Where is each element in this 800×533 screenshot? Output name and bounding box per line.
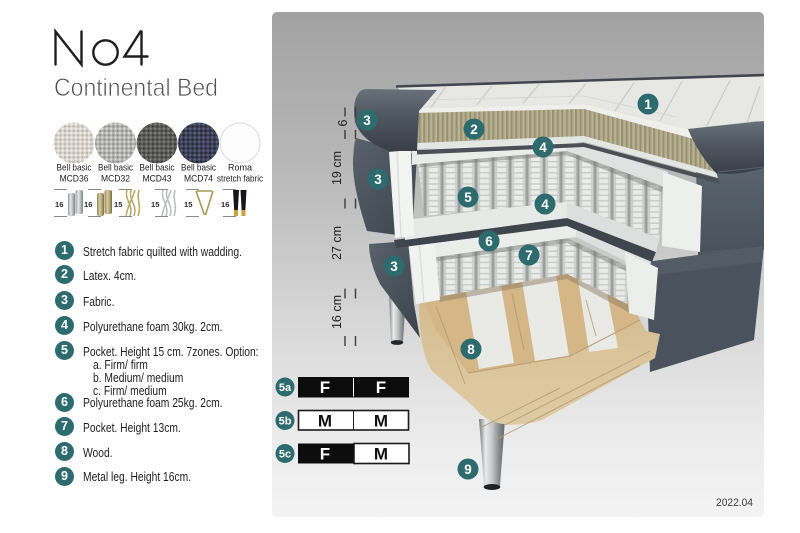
svg-text:3: 3 — [374, 172, 382, 187]
svg-text:9: 9 — [464, 462, 472, 477]
svg-text:F: F — [320, 378, 330, 397]
svg-text:F: F — [376, 378, 386, 397]
svg-text:4: 4 — [541, 197, 549, 212]
svg-text:M: M — [318, 412, 332, 431]
svg-text:2: 2 — [470, 122, 478, 137]
svg-text:5a: 5a — [279, 382, 292, 394]
svg-text:5b: 5b — [279, 416, 292, 428]
svg-text:8: 8 — [467, 342, 475, 357]
svg-text:F: F — [320, 445, 330, 464]
svg-text:M: M — [374, 445, 388, 464]
svg-text:3: 3 — [363, 113, 371, 128]
svg-text:M: M — [374, 412, 388, 431]
svg-text:2022.04: 2022.04 — [716, 497, 753, 509]
svg-text:4: 4 — [539, 140, 547, 155]
svg-text:7: 7 — [525, 248, 533, 263]
svg-text:5c: 5c — [279, 449, 291, 461]
svg-text:3: 3 — [390, 259, 398, 274]
svg-text:6: 6 — [485, 234, 493, 249]
svg-text:19 cm: 19 cm — [330, 151, 344, 185]
svg-text:1: 1 — [644, 97, 652, 112]
svg-text:5: 5 — [464, 190, 472, 205]
svg-text:16 cm: 16 cm — [330, 295, 344, 329]
svg-text:27 cm: 27 cm — [330, 226, 344, 260]
svg-text:6: 6 — [336, 119, 350, 126]
